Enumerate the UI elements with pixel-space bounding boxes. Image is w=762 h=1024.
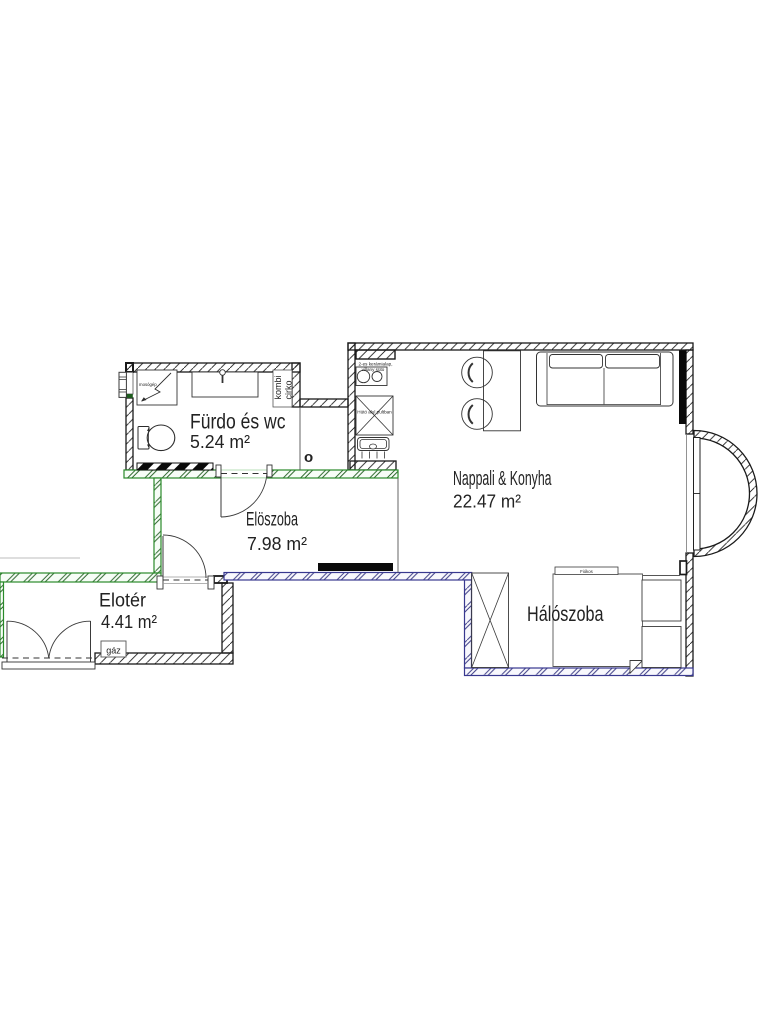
svg-text:4.41 m²: 4.41 m² bbox=[101, 611, 157, 632]
svg-text:2-es kerámialap,: 2-es kerámialap, bbox=[359, 362, 393, 367]
svg-text:Elöszoba: Elöszoba bbox=[246, 510, 298, 531]
svg-text:Hütö alul pultban: Hütö alul pultban bbox=[357, 410, 392, 415]
svg-text:kombi: kombi bbox=[273, 375, 283, 399]
svg-text:cirko: cirko bbox=[284, 380, 294, 399]
svg-text:7.98 m²: 7.98 m² bbox=[247, 533, 307, 554]
svg-text:Elotér: Elotér bbox=[99, 591, 147, 612]
svg-text:Nappali & Konyha: Nappali & Konyha bbox=[453, 468, 552, 490]
svg-text:villany süto: villany süto bbox=[362, 367, 385, 372]
svg-text:o: o bbox=[304, 449, 313, 466]
svg-text:gáz: gáz bbox=[106, 646, 121, 656]
svg-text:mosógép: mosógép bbox=[139, 382, 157, 387]
svg-text:Fiókos: Fiókos bbox=[580, 569, 593, 574]
svg-text:Hálószoba: Hálószoba bbox=[527, 603, 604, 626]
svg-text:5.24 m²: 5.24 m² bbox=[190, 431, 250, 452]
svg-text:22.47 m²: 22.47 m² bbox=[453, 491, 521, 512]
svg-text:Fürdo és wc: Fürdo és wc bbox=[190, 410, 286, 434]
